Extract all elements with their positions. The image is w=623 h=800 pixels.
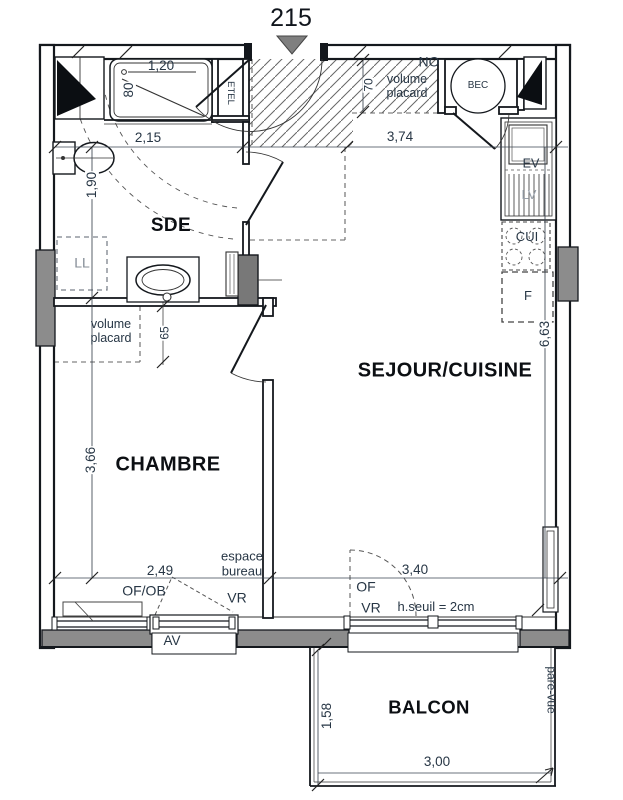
sde-door: [246, 152, 283, 225]
floor-plan-drawing: [0, 0, 623, 800]
dim-sde-length: 1,90: [85, 171, 99, 199]
volume-placard-entree-label: volume placard: [387, 72, 428, 100]
dim-balcon-depth: 1,58: [320, 702, 334, 730]
dim-sejour-width: 3,74: [387, 130, 413, 144]
dim-shower-width: 1,20: [148, 59, 174, 73]
dim-placard-sde: 65: [159, 325, 172, 340]
left-wall-concrete-block: [36, 250, 55, 346]
dimension-lines: [55, 59, 568, 785]
unit-number: 215: [270, 5, 312, 31]
of-label: OF: [356, 580, 375, 595]
room-label-balcon: BALCON: [388, 697, 470, 716]
av-label: AV: [163, 634, 180, 648]
unit-marker-triangle: [277, 36, 307, 54]
cooktop-label: CUI: [516, 230, 538, 244]
dim-balcon-width: 3,00: [424, 755, 450, 769]
right-wall-concrete-block: [558, 247, 578, 301]
balcony-french-window: [344, 616, 522, 652]
espace-bureau-label: espace bureau: [221, 549, 263, 578]
balcony-dim-arrow: [536, 768, 553, 783]
h-seuil-label: h.seuil = 2cm: [398, 600, 475, 614]
vr-sejour-label: VR: [361, 601, 380, 616]
washing-machine-label: LL: [74, 256, 90, 271]
dim-placard-depth: 70: [363, 77, 376, 92]
room-label-chambre: CHAMBRE: [115, 455, 220, 476]
orientation-label: NO: [419, 55, 440, 70]
dim-chambre-width: 2,49: [147, 564, 173, 578]
av-window-swing-dashed: [155, 577, 233, 615]
towel-radiator: [226, 252, 238, 296]
dim-shower-depth: 80: [122, 81, 136, 98]
dim-sde-width: 2,15: [135, 131, 161, 145]
dimension-ticks: [49, 46, 566, 791]
washbasin: [127, 257, 199, 365]
volume-placard-sde-label: volume placard: [91, 317, 132, 345]
room-label-sejour-cuisine: SEJOUR/CUISINE: [358, 361, 533, 382]
entry-door-jamb-right: [320, 43, 328, 61]
room-label-sde: SDE: [151, 216, 191, 236]
etel-label: ETEL: [225, 81, 235, 105]
dim-baie-width: 3,40: [402, 563, 428, 577]
chambre-window-of-ob: [52, 617, 152, 630]
fridge-label: F: [524, 289, 532, 303]
top-left-window: [55, 57, 104, 119]
pare-vue-label: pare-vue: [545, 666, 558, 713]
of-ob-label: OF/OB: [122, 584, 166, 599]
water-heater-label: BEC: [468, 81, 489, 92]
dim-sejour-length: 6,63: [538, 320, 552, 348]
sink-label: EV: [523, 157, 540, 170]
dishwasher-label: LV: [522, 188, 537, 202]
floor-plan: 215 1,20 80 ETEL 2,15 3,74 NO volume pla…: [0, 0, 623, 800]
technical-duct: [238, 255, 258, 305]
dim-chambre-length: 3,66: [84, 446, 98, 474]
vr-chambre-label: VR: [227, 591, 246, 606]
chambre-radiator: [63, 602, 142, 621]
bedroom-door: [231, 305, 266, 382]
